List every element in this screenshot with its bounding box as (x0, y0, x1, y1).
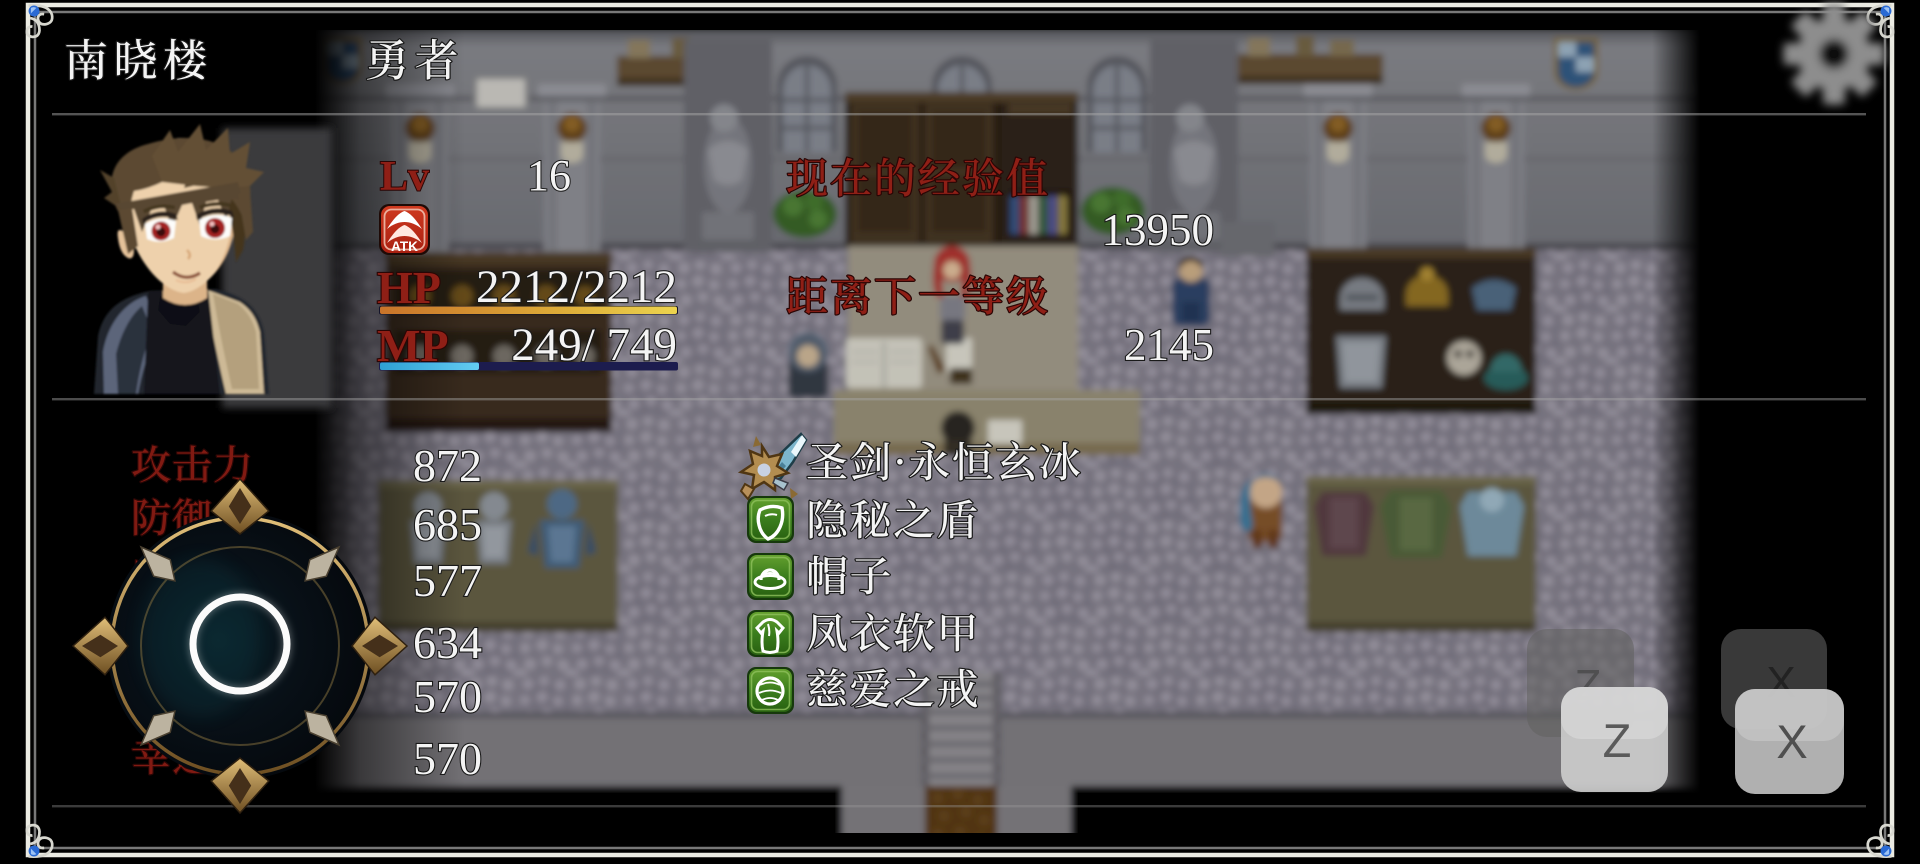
svg-text:577: 577 (413, 555, 482, 606)
svg-text:Lv: Lv (380, 154, 429, 200)
svg-text:685: 685 (413, 499, 482, 550)
svg-text:X: X (1776, 715, 1807, 768)
svg-text:570: 570 (413, 671, 482, 722)
svg-text:570: 570 (413, 733, 482, 784)
svg-text:Z: Z (1603, 714, 1632, 767)
svg-text:13950: 13950 (1102, 205, 1215, 255)
svg-text:2212/2212: 2212/2212 (476, 261, 677, 313)
svg-text:HP: HP (377, 262, 441, 313)
svg-text:872: 872 (413, 440, 482, 491)
svg-text:16: 16 (527, 151, 571, 200)
svg-text:634: 634 (413, 617, 482, 668)
svg-text:ATK: ATK (391, 239, 418, 254)
svg-text:2145: 2145 (1124, 320, 1214, 370)
